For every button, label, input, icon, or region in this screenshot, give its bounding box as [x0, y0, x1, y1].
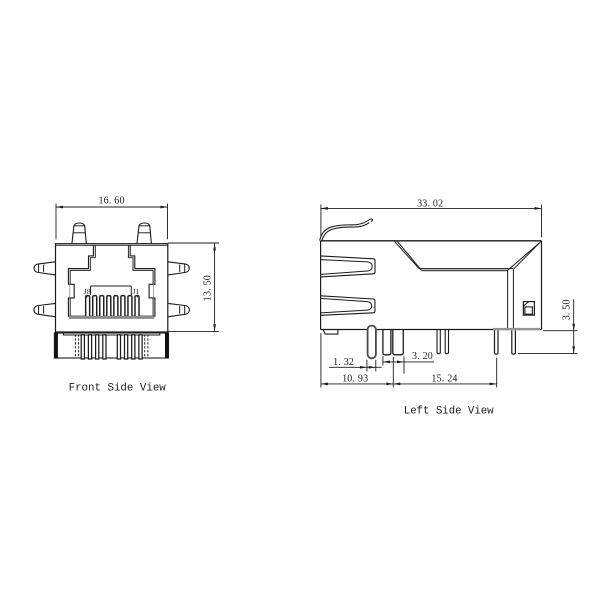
- svg-text:3. 20: 3. 20: [412, 351, 433, 362]
- svg-text:Front Side View: Front Side View: [69, 383, 167, 395]
- svg-text:15. 24: 15. 24: [431, 373, 457, 384]
- svg-text:J8: J8: [84, 287, 91, 296]
- svg-text:10. 93: 10. 93: [342, 373, 368, 384]
- svg-text:Left Side View: Left Side View: [404, 405, 494, 417]
- svg-text:13. 50: 13. 50: [203, 275, 214, 301]
- svg-text:J1: J1: [132, 287, 139, 296]
- svg-text:3. 50: 3. 50: [562, 299, 573, 320]
- svg-text:1. 32: 1. 32: [333, 357, 354, 368]
- svg-text:33. 02: 33. 02: [417, 198, 443, 209]
- svg-text:16. 60: 16. 60: [98, 196, 124, 207]
